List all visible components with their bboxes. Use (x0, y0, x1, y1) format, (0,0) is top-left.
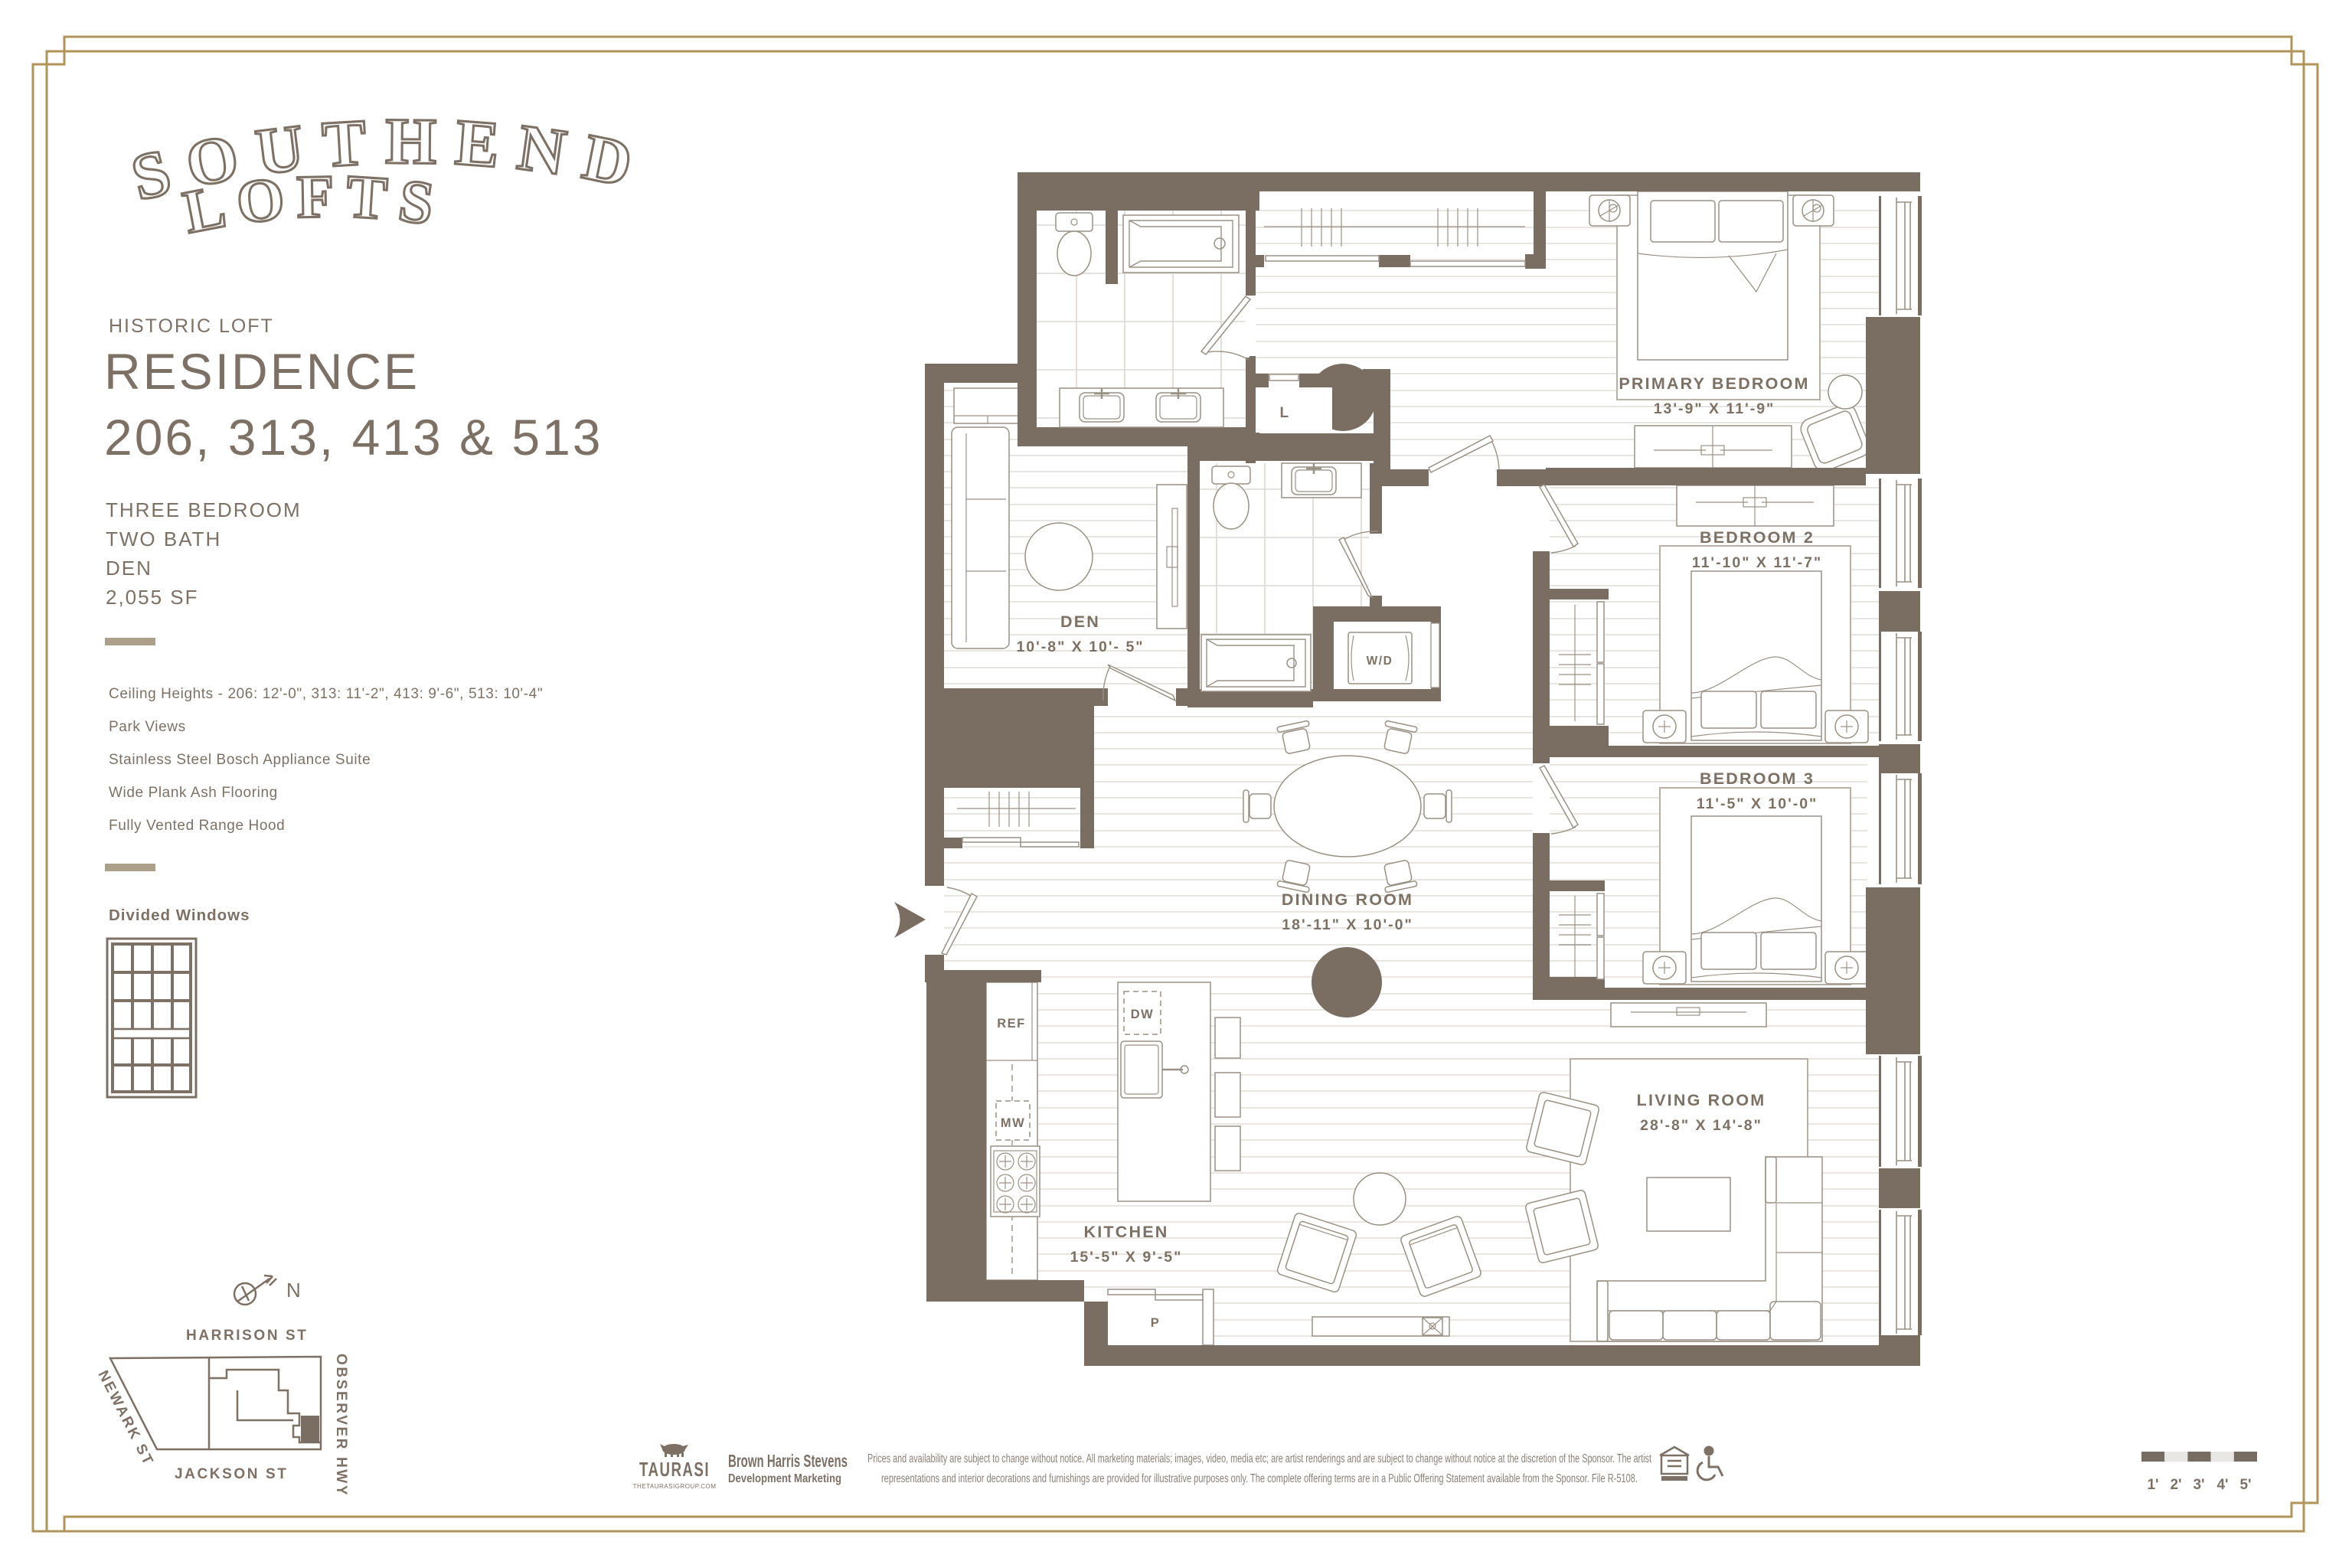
svg-text:Brown Harris Stevens: Brown Harris Stevens (728, 1451, 848, 1471)
svg-text:DINING ROOM: DINING ROOM (1282, 890, 1413, 909)
svg-text:11'-5" X 10'-0": 11'-5" X 10'-0" (1697, 795, 1818, 812)
svg-text:MW: MW (1001, 1116, 1025, 1130)
svg-text:10'-8" X 10'- 5": 10'-8" X 10'- 5" (1016, 639, 1144, 655)
svg-text:18'-11" X 10'-0": 18'-11" X 10'-0" (1282, 916, 1413, 933)
svg-text:Wide Plank Ash Flooring: Wide Plank Ash Flooring (109, 785, 278, 801)
svg-text:JACKSON ST: JACKSON ST (175, 1466, 288, 1482)
svg-text:DEN: DEN (1060, 612, 1100, 631)
svg-text:Ceiling Heights - 206: 12'-0",: Ceiling Heights - 206: 12'-0", 313: 11'-… (109, 686, 543, 702)
svg-text:BEDROOM 3: BEDROOM 3 (1700, 769, 1815, 788)
svg-text:11'-10" X 11'-7": 11'-10" X 11'-7" (1692, 554, 1822, 571)
svg-text:2,055 SF: 2,055 SF (106, 586, 199, 609)
svg-text:Prices and availability are su: Prices and availability are subject to c… (867, 1452, 1651, 1465)
svg-text:Stainless Steel Bosch Applianc: Stainless Steel Bosch Appliance Suite (109, 752, 371, 768)
svg-text:THREE BEDROOM: THREE BEDROOM (106, 498, 302, 521)
svg-text:DW: DW (1131, 1008, 1155, 1021)
svg-text:PRIMARY BEDROOM: PRIMARY BEDROOM (1619, 374, 1809, 393)
svg-text:TAURASI: TAURASI (639, 1458, 710, 1481)
svg-text:OBSERVER HWY: OBSERVER HWY (333, 1354, 349, 1497)
svg-text:Divided Windows: Divided Windows (109, 906, 250, 924)
svg-text:15'-5" X 9'-5": 15'-5" X 9'-5" (1070, 1249, 1183, 1266)
svg-text:1': 1' (2147, 1477, 2158, 1493)
svg-text:L: L (1279, 405, 1289, 421)
svg-text:HISTORIC LOFT: HISTORIC LOFT (109, 315, 274, 337)
svg-text:TWO BATH: TWO BATH (106, 528, 221, 550)
svg-text:representations and interior d: representations and interior decorations… (881, 1472, 1638, 1485)
svg-text:N: N (286, 1279, 302, 1302)
svg-text:2': 2' (2170, 1477, 2181, 1493)
svg-text:13'-9" X 11'-9": 13'-9" X 11'-9" (1654, 400, 1775, 417)
svg-text:DEN: DEN (106, 557, 152, 580)
svg-text:Fully Vented Range Hood: Fully Vented Range Hood (109, 818, 285, 834)
svg-text:W/D: W/D (1367, 655, 1393, 668)
svg-text:THETAURASIGROUP.COM: THETAURASIGROUP.COM (633, 1483, 717, 1490)
svg-text:LIVING ROOM: LIVING ROOM (1637, 1091, 1766, 1109)
svg-text:HARRISON ST: HARRISON ST (186, 1328, 309, 1344)
svg-text:REF: REF (997, 1017, 1026, 1031)
svg-text:206, 313, 413 & 513: 206, 313, 413 & 513 (104, 409, 603, 465)
svg-text:Development Marketing: Development Marketing (728, 1472, 841, 1485)
svg-text:3': 3' (2193, 1477, 2204, 1493)
svg-text:5': 5' (2239, 1477, 2251, 1493)
svg-text:RESIDENCE: RESIDENCE (104, 343, 420, 400)
svg-text:Park Views: Park Views (109, 719, 186, 735)
svg-text:KITCHEN: KITCHEN (1084, 1223, 1169, 1241)
svg-text:P: P (1151, 1316, 1161, 1330)
svg-text:28'-8" X 14'-8": 28'-8" X 14'-8" (1640, 1117, 1762, 1134)
svg-text:BEDROOM 2: BEDROOM 2 (1700, 528, 1815, 547)
svg-text:4': 4' (2216, 1477, 2228, 1493)
